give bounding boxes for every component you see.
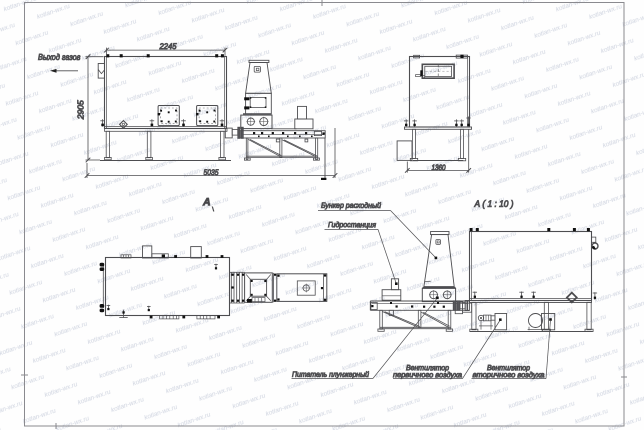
svg-text:5035: 5035 [203,168,218,177]
svg-text:первичного воздуха: первичного воздуха [393,370,462,379]
svg-text:вторичного воздуха: вторичного воздуха [472,370,544,379]
svg-text:Выход газов: Выход газов [38,52,81,62]
svg-text:Питатель плунжерный: Питатель плунжерный [292,370,370,379]
svg-text:1360: 1360 [431,163,445,172]
svg-text:Бункер расходный: Бункер расходный [321,201,382,210]
svg-text:2245: 2245 [159,42,177,51]
svg-text:А ( 1 : 10 ): А ( 1 : 10 ) [474,199,514,209]
svg-text:2905: 2905 [77,100,86,121]
svg-text:Гидростанция: Гидростанция [328,220,376,229]
svg-text:А: А [202,196,211,208]
